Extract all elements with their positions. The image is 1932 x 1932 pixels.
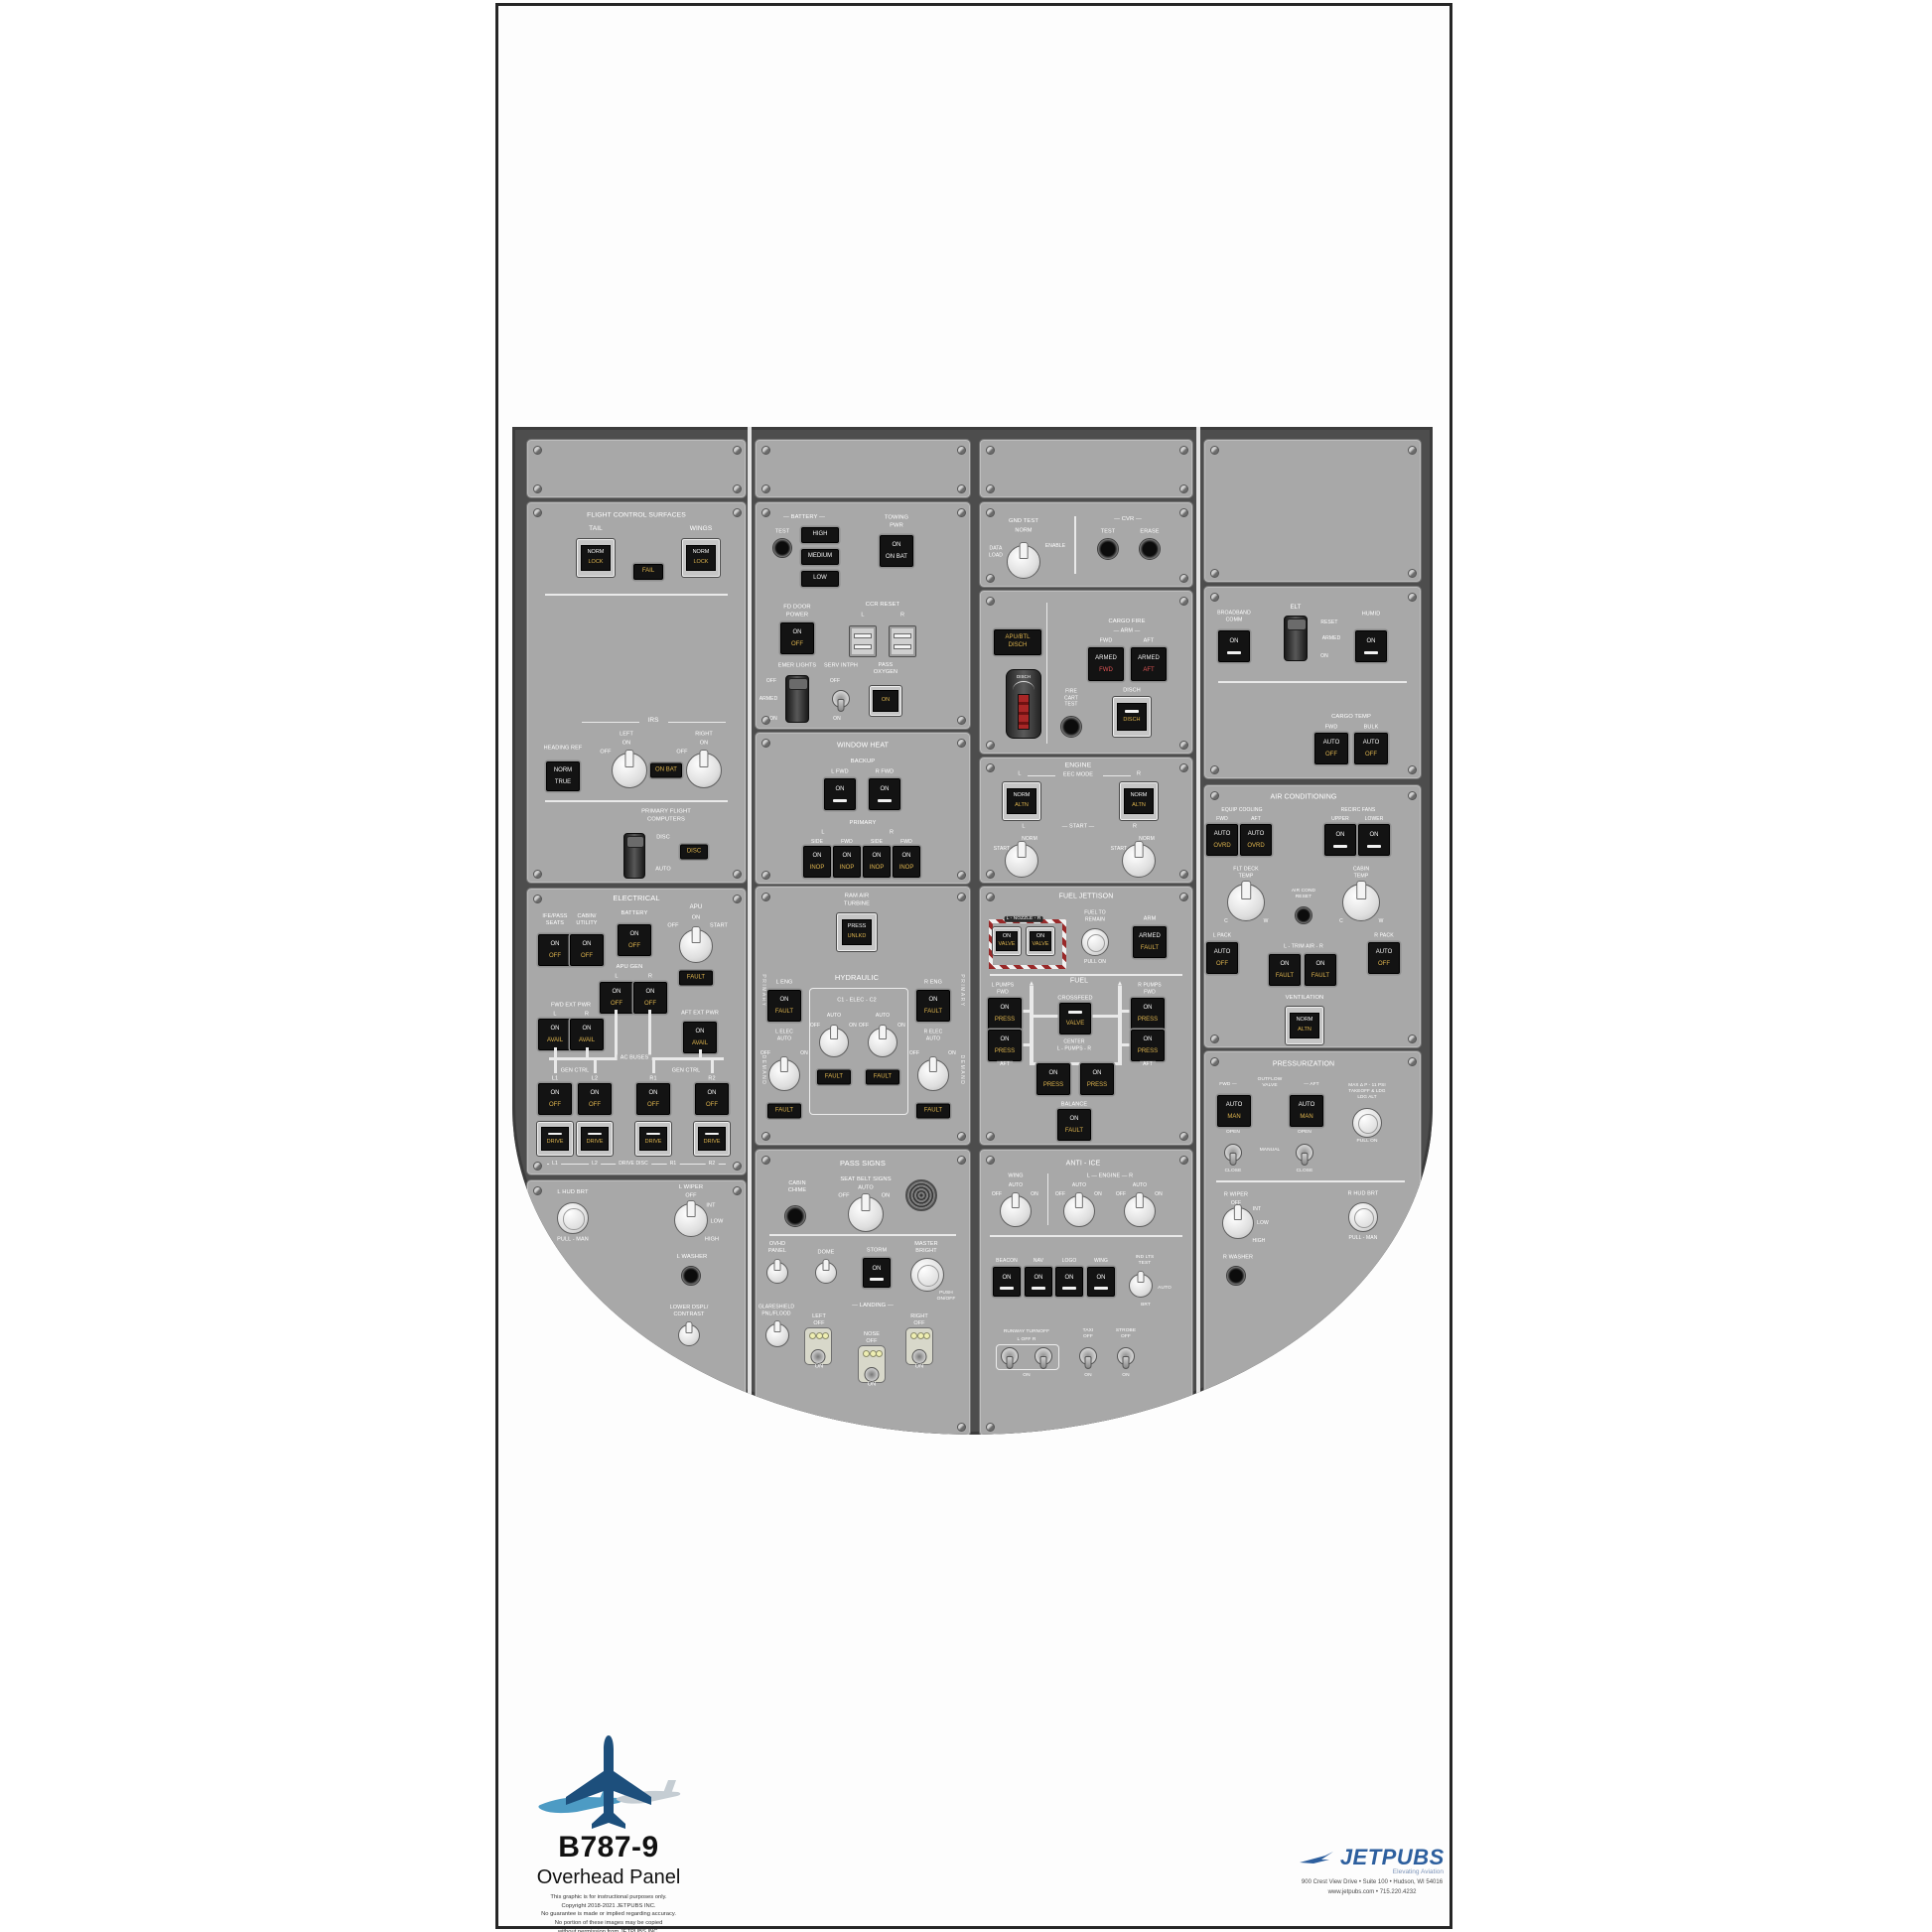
ife-pass-seats[interactable]: ONOFF xyxy=(538,934,572,966)
w: W xyxy=(1264,918,1269,925)
flt-deck-temp-knob-pointer xyxy=(1241,881,1251,899)
off: OFF xyxy=(1055,1191,1065,1198)
battery-test-button[interactable] xyxy=(772,538,792,558)
plate-mid-right-gnd-test: GND TESTNORMDATA LOADENABLE— CVR —TESTER… xyxy=(979,501,1193,588)
ccr-reset-l-slot-1 xyxy=(854,633,872,638)
dome-knob-pointer xyxy=(823,1259,830,1271)
landing-right-toggle[interactable] xyxy=(905,1327,933,1365)
beacon-light-switch[interactable]: ON xyxy=(993,1267,1021,1297)
on: ON xyxy=(868,1381,876,1388)
window-heat-backup-r-fwd[interactable]: ON xyxy=(869,778,900,810)
equip-cooling-aft[interactable]: AUTOOVRD xyxy=(1240,824,1272,856)
off: OFF xyxy=(760,1050,770,1057)
lower-dspl-contrast-knob[interactable] xyxy=(678,1324,700,1346)
plate-left-fcs: FLIGHT CONTROL SURFACESTAILWINGSNORMLOCK… xyxy=(526,501,747,884)
on: ON xyxy=(1084,1373,1091,1379)
apu-gen: APU GEN xyxy=(617,964,643,972)
low: LOW xyxy=(711,1218,724,1225)
jettison-nozzle-l[interactable]: ONVALVE xyxy=(992,926,1022,956)
screw-icon-0 xyxy=(986,597,995,606)
l-fwd: L FWD xyxy=(831,768,848,775)
screw-icon-3 xyxy=(1408,765,1417,774)
indicator-bar xyxy=(646,1133,660,1136)
l-fuel-pump-aft[interactable]: ONPRESS xyxy=(988,1030,1022,1061)
jettison-nozzle-r[interactable]: ONVALVE xyxy=(1026,926,1055,956)
arm: — ARM — xyxy=(1114,627,1141,634)
fuel-to-remain-knob[interactable] xyxy=(1081,928,1109,956)
gen-ctrl-l1[interactable]: ONOFF xyxy=(538,1083,572,1115)
ln xyxy=(1033,1015,1061,1018)
open: OPEN xyxy=(1298,1130,1311,1136)
runway-turnoff-l[interactable] xyxy=(1001,1347,1019,1365)
medium-indicator: MEDIUM xyxy=(801,549,839,565)
arm: ARM xyxy=(1144,915,1157,922)
ind-lts-test: IND LTS TEST xyxy=(1136,1255,1155,1267)
plate-mid-left-window-heat: WINDOW HEATBACKUPL FWDR FWDONONPRIMARYLR… xyxy=(755,732,971,885)
fault-indicator: FAULT xyxy=(767,1104,801,1119)
pull-on: PULL ON xyxy=(1356,1139,1377,1145)
screw-icon-0 xyxy=(986,446,995,455)
landing-left-toggle[interactable] xyxy=(804,1327,832,1365)
start: START xyxy=(710,922,728,929)
ln xyxy=(711,1059,714,1073)
fwd-ext-pwr: FWD EXT PWR xyxy=(551,1002,591,1009)
screw-icon-1 xyxy=(1408,1057,1417,1066)
screw-icon-0 xyxy=(761,446,770,455)
indicator-bar xyxy=(1125,710,1139,713)
equip-cooling-fwd[interactable]: AUTOOVRD xyxy=(1206,824,1238,856)
fd-door-power[interactable]: ONOFF xyxy=(780,622,814,654)
push-on-off: PUSH ON/OFF xyxy=(937,1291,956,1303)
screw-icon-2 xyxy=(986,1423,995,1432)
serv-intph-toggle-lever xyxy=(838,699,845,712)
strobe-off: STROBE OFF xyxy=(1116,1328,1136,1340)
logo-light-switch[interactable]: ON xyxy=(1055,1267,1083,1297)
engine-anti-ice-r[interactable] xyxy=(1124,1195,1156,1227)
apu-selector[interactable] xyxy=(679,929,713,963)
r-washer-button[interactable] xyxy=(1226,1266,1246,1286)
r-washer: R WASHER xyxy=(1223,1254,1253,1261)
window-heat-r-fwd[interactable]: ONINOP xyxy=(893,846,920,878)
irs-right-knob[interactable] xyxy=(686,753,722,788)
screw-icon-0 xyxy=(1210,593,1219,602)
drive-disc-r2[interactable]: DRIVE xyxy=(693,1121,731,1157)
elt-guard-switch-cap xyxy=(1287,619,1307,630)
engine-anti-ice-l[interactable] xyxy=(1063,1195,1095,1227)
landing-left-toggle-lamp-0 xyxy=(809,1332,816,1339)
lower: LOWER xyxy=(1365,816,1384,823)
right-off: RIGHT OFF xyxy=(910,1313,928,1327)
side: SIDE xyxy=(811,839,823,846)
emer-lights: EMER LIGHTS xyxy=(778,662,816,669)
broadband-comm-switch[interactable]: ON xyxy=(1218,630,1250,662)
screw-icon-3 xyxy=(1179,741,1188,750)
fire-cart-test-button[interactable] xyxy=(1060,716,1082,738)
fwd: FWD — xyxy=(1219,1082,1237,1088)
screw-icon-0 xyxy=(761,508,770,517)
window-heat-l-fwd[interactable]: ONINOP xyxy=(833,846,861,878)
aft: — AFT xyxy=(1304,1082,1318,1088)
l-wiper-selector[interactable] xyxy=(674,1203,708,1237)
ovhd-panel: OVHD PANEL xyxy=(768,1241,786,1255)
gen-ctrl-r2[interactable]: ONOFF xyxy=(695,1083,729,1115)
drive-disc-l2[interactable]: DRIVE xyxy=(576,1121,614,1157)
glareshield-pnl-flood-knob[interactable] xyxy=(765,1323,789,1347)
window-heat: WINDOW HEAT xyxy=(837,741,889,750)
gen-ctrl: GEN CTRL xyxy=(561,1067,590,1074)
strobe-light-toggle-lever xyxy=(1123,1356,1130,1369)
plate-mid-left-blank xyxy=(755,439,971,498)
c: C xyxy=(1224,918,1228,925)
fault-indicator: FAULT xyxy=(679,971,713,986)
r-wiper-selector[interactable] xyxy=(1222,1207,1254,1239)
pass-oxygen-switch-window: ON xyxy=(873,690,897,711)
l-fuel-pump-fwd[interactable]: ONPRESS xyxy=(988,998,1022,1030)
l-wiper-selector-pointer xyxy=(687,1200,696,1217)
window-heat-l-side[interactable]: ONINOP xyxy=(803,846,831,878)
eec-mode-l[interactable]: NORMALTN xyxy=(1002,781,1041,821)
on: ON xyxy=(948,1050,956,1057)
disch: DISCH xyxy=(1123,687,1141,694)
dome: DOME xyxy=(818,1249,835,1256)
poster-page: FLIGHT CONTROL SURFACESTAILWINGSNORMLOCK… xyxy=(0,0,1932,1932)
on: ON xyxy=(915,1363,923,1370)
hyd-c1-selector[interactable] xyxy=(819,1028,849,1057)
l-elec-auto: L ELEC AUTO xyxy=(775,1030,793,1042)
flight-control-surfaces: FLIGHT CONTROL SURFACES xyxy=(587,512,686,521)
l-hud-brt-knob[interactable] xyxy=(557,1202,589,1234)
center-fuel-pump-r[interactable]: ONPRESS xyxy=(1080,1063,1114,1095)
fwd-ext-pwr-l[interactable]: ONAVAIL xyxy=(538,1019,572,1050)
pfc-disconnect-guard-cap xyxy=(626,836,645,848)
manual-outflow-fwd-lever xyxy=(1230,1153,1237,1166)
nav-light-switch[interactable]: ON xyxy=(1025,1267,1052,1297)
landing-right-toggle-switch xyxy=(912,1349,927,1364)
window-heat-r-side[interactable]: ONINOP xyxy=(863,846,891,878)
emer-lights-guard[interactable] xyxy=(785,675,809,723)
gen-ctrl-l2[interactable]: ONOFF xyxy=(578,1083,612,1115)
engine: ENGINE xyxy=(1065,762,1092,771)
ind-lts-selector[interactable] xyxy=(1129,1274,1153,1298)
recirc-fan-lower[interactable]: ON xyxy=(1358,824,1390,856)
ln xyxy=(1047,1173,1048,1225)
screw-icon-0 xyxy=(533,895,542,903)
auto: AUTO xyxy=(827,1013,841,1020)
ccr-reset-l-slot-2 xyxy=(854,644,872,649)
center-fuel-pump-l[interactable]: ONPRESS xyxy=(1036,1063,1070,1095)
fuel-balance[interactable]: ONFAULT xyxy=(1057,1109,1091,1141)
eec-mode-r[interactable]: NORMALTN xyxy=(1119,781,1159,821)
fwd-ext-pwr-r[interactable]: ONAVAIL xyxy=(570,1019,604,1050)
beacon: BEACON xyxy=(996,1258,1018,1265)
outflow-valve-fwd[interactable]: AUTOMAN xyxy=(1217,1095,1251,1127)
wings-norm-lock-window: NORMLOCK xyxy=(686,545,715,571)
r-fuel-pump-aft[interactable]: ONPRESS xyxy=(1131,1030,1165,1061)
irs-left-knob[interactable] xyxy=(612,753,647,788)
landing-nose-toggle-lamp-0 xyxy=(863,1350,870,1357)
screw-icon-0 xyxy=(761,893,770,901)
towing-pwr-switch[interactable]: ONON BAT xyxy=(880,535,913,567)
aft-ext-pwr: AFT EXT PWR xyxy=(681,1010,719,1017)
screw-icon-0 xyxy=(761,1156,770,1165)
plate-mid-right-engine: ENGINEEEC MODELRNORMALTNNORMALTN— START … xyxy=(979,757,1193,884)
window-heat-backup-l-fwd[interactable]: ON xyxy=(824,778,856,810)
hyd-r-elec-selector-pointer xyxy=(929,1056,937,1072)
disc-indicator: DISC xyxy=(680,845,708,860)
drive-disc-r1[interactable]: DRIVE xyxy=(634,1121,672,1157)
r-pumps-fwd: R PUMPS FWD xyxy=(1138,983,1161,996)
ln xyxy=(769,1234,956,1236)
ln xyxy=(1074,516,1076,574)
indicator-bar xyxy=(1333,845,1347,848)
aft: AFT xyxy=(1140,1061,1156,1068)
ln xyxy=(990,974,1182,976)
ac-buses: AC BUSES xyxy=(618,1054,652,1061)
screw-icon-2 xyxy=(1210,569,1219,578)
primary: PRIMARY xyxy=(760,974,766,1007)
outflow-valve-aft[interactable]: AUTOMAN xyxy=(1290,1095,1323,1127)
plate-right-air-conditioning: AIR CONDITIONINGEQUIP COOLINGFWDAFTAUTOO… xyxy=(1203,784,1422,1048)
air-cond-reset-button[interactable] xyxy=(1295,906,1312,924)
screw-icon-1 xyxy=(957,739,966,748)
plate-left-electrical: ELECTRICALIFE/PASS SEATSCABIN/ UTILITYON… xyxy=(526,888,747,1175)
fault-indicator: FAULT xyxy=(916,1104,950,1119)
fire-cart-test: FIRE CART TEST xyxy=(1064,688,1078,708)
hyd-r-elec-selector[interactable] xyxy=(917,1059,949,1091)
drive-disc-l1[interactable]: DRIVE xyxy=(536,1121,574,1157)
ram-air-turbine-switch[interactable]: PRESSUNLKD xyxy=(836,912,878,952)
primary: PRIMARY xyxy=(849,820,876,828)
pfc-disconnect-guard[interactable] xyxy=(623,833,645,879)
trim-air-r[interactable]: ONFAULT xyxy=(1305,954,1336,986)
jetpubs-swoosh-icon xyxy=(1300,1852,1333,1865)
cargo-fire-arm-fwd[interactable]: ARMEDFWD xyxy=(1088,647,1124,681)
humid-switch[interactable]: ON xyxy=(1355,630,1387,662)
cabin-chime-button[interactable] xyxy=(784,1205,806,1227)
l: L xyxy=(1022,823,1025,830)
r-wiper-selector-pointer xyxy=(1234,1204,1242,1220)
ln xyxy=(699,1049,702,1057)
r: R xyxy=(1137,770,1141,777)
flt-deck-temp-knob[interactable] xyxy=(1227,884,1265,921)
l: L xyxy=(553,1011,556,1018)
tail-norm-lock-window: NORMLOCK xyxy=(581,545,610,571)
pass-oxygen-switch[interactable]: ON xyxy=(869,685,902,717)
l-washer-button[interactable] xyxy=(681,1266,701,1286)
screw-icon-2 xyxy=(533,1162,542,1171)
screw-icon-3 xyxy=(1179,484,1188,493)
drive-disc: DRIVE DISC xyxy=(616,1161,651,1168)
on: ON xyxy=(815,1363,823,1370)
eec-mode-r-window: NORMALTN xyxy=(1124,788,1153,814)
screw-icon-1 xyxy=(957,508,966,517)
armed: ARMED xyxy=(759,696,778,703)
r: R xyxy=(585,1011,589,1018)
engine-anti-ice-r-pointer xyxy=(1136,1192,1144,1208)
cargo-fire-arm-aft[interactable]: ARMEDAFT xyxy=(1131,647,1167,681)
hyd-l-eng[interactable]: ONFAULT xyxy=(767,990,801,1022)
battery: — BATTERY — xyxy=(783,514,825,522)
screw-icon-0 xyxy=(1210,791,1219,800)
runway-turnoff-r[interactable] xyxy=(1035,1347,1052,1365)
right: RIGHT xyxy=(695,731,713,738)
cvr-test-button[interactable] xyxy=(1097,538,1119,560)
screw-icon-1 xyxy=(1179,763,1188,772)
off: OFF xyxy=(676,749,687,756)
off: OFF xyxy=(667,922,678,929)
gnd-test-selector[interactable] xyxy=(1007,545,1040,579)
ovhd-panel-knob[interactable] xyxy=(766,1262,788,1284)
off: OFF xyxy=(1116,1191,1126,1198)
ln xyxy=(554,1047,557,1057)
engine-start-r[interactable] xyxy=(1122,844,1156,878)
ccr-reset-l[interactable] xyxy=(849,625,877,657)
high: HIGH xyxy=(705,1236,719,1243)
center-l-pumps-r: CENTER L - PUMPS - R xyxy=(1054,1039,1094,1052)
gen-ctrl-r1[interactable]: ONOFF xyxy=(636,1083,670,1115)
screw-icon-0 xyxy=(533,446,542,455)
hyd-l-elec-selector-pointer xyxy=(780,1056,788,1072)
close: CLOSE xyxy=(1225,1169,1242,1174)
ccr-reset-r[interactable] xyxy=(889,625,916,657)
strobe-light-toggle[interactable] xyxy=(1117,1347,1135,1365)
screw-icon-3 xyxy=(1408,569,1417,578)
pull-man: PULL - MAN xyxy=(1349,1235,1378,1242)
apu-fire-handle[interactable]: DISCH xyxy=(1006,669,1041,739)
ln xyxy=(990,1235,1182,1237)
cargo-fire-disch[interactable]: DISCH xyxy=(1112,696,1152,738)
apu-selector-pointer xyxy=(692,926,701,943)
on: ON xyxy=(849,1023,857,1030)
engine-start-l[interactable] xyxy=(1005,844,1038,878)
cabin-utility[interactable]: ONOFF xyxy=(570,934,604,966)
apu-fire-handle-arc xyxy=(1013,681,1035,690)
off: OFF xyxy=(859,1023,869,1030)
fuel-jettison: FUEL JETTISON xyxy=(1059,892,1114,900)
screw-icon-1 xyxy=(733,1186,742,1195)
trim-air-l[interactable]: ONFAULT xyxy=(1269,954,1301,986)
hyd-c2-selector[interactable] xyxy=(868,1028,897,1057)
auto: AUTO xyxy=(876,1013,890,1020)
cargo-temp-bulk[interactable]: AUTOOFF xyxy=(1354,733,1388,764)
cvr-erase-button[interactable] xyxy=(1139,538,1161,560)
jetpubs-address: 900 Crest View Drive • Suite 100 • Hudso… xyxy=(1273,1878,1471,1897)
seat-belt-signs-selector[interactable] xyxy=(848,1196,884,1232)
master-bright-knob[interactable] xyxy=(910,1258,944,1292)
recirc-fan-upper[interactable]: ON xyxy=(1324,824,1356,856)
wing-anti-ice-selector[interactable] xyxy=(1000,1195,1032,1227)
screw-icon-0 xyxy=(986,1156,995,1165)
elt-guard-switch[interactable] xyxy=(1284,616,1308,661)
battery-switch[interactable]: ONOFF xyxy=(618,924,651,956)
jettison-arm[interactable]: ARMEDFAULT xyxy=(1133,926,1167,958)
ln xyxy=(545,800,728,802)
on: ON xyxy=(700,740,708,747)
ln xyxy=(1118,986,1122,1065)
wings: WINGS xyxy=(690,525,713,533)
r-fuel-pump-fwd[interactable]: ONPRESS xyxy=(1131,998,1165,1030)
hyd-l-elec-selector[interactable] xyxy=(768,1059,800,1091)
ln xyxy=(1218,681,1407,683)
off: OFF xyxy=(600,749,611,756)
hyd-r-eng[interactable]: ONFAULT xyxy=(916,990,950,1022)
screw-icon-3 xyxy=(733,870,742,879)
ldg-alt-knob[interactable] xyxy=(1352,1108,1382,1138)
cargo-temp: CARGO TEMP xyxy=(1331,714,1371,722)
l1: L1 xyxy=(552,1075,558,1082)
wings-norm-lock[interactable]: NORMLOCK xyxy=(681,538,721,578)
cargo-temp-fwd[interactable]: AUTOOFF xyxy=(1314,733,1348,764)
drive-disc-l1-window: DRIVE xyxy=(541,1127,569,1151)
fuel-to-remain: FUEL TO REMAIN xyxy=(1084,910,1105,923)
landing-nose-toggle[interactable] xyxy=(858,1345,886,1383)
r-pack[interactable]: AUTOOFF xyxy=(1368,942,1400,974)
dome-knob[interactable] xyxy=(815,1262,837,1284)
gnd-test-selector-pointer xyxy=(1020,542,1029,559)
cabin-temp-knob[interactable] xyxy=(1342,884,1380,921)
auto: AUTO xyxy=(858,1184,874,1191)
screw-icon-3 xyxy=(957,1132,966,1141)
ccr-reset-r-slot-1 xyxy=(894,633,911,638)
r-hud-brt-knob[interactable] xyxy=(1348,1202,1378,1232)
speaker-grille xyxy=(905,1179,937,1211)
crossfeed: CROSSFEED xyxy=(1054,995,1095,1002)
runway-turnoff-l-lever xyxy=(1007,1356,1014,1369)
int: INT xyxy=(1253,1206,1261,1213)
pass-oxygen: PASS OXYGEN xyxy=(874,662,897,676)
taxi-light-toggle[interactable] xyxy=(1079,1347,1097,1365)
screw-icon-3 xyxy=(957,716,966,725)
screw-icon-3 xyxy=(957,871,966,880)
screw-icon-2 xyxy=(761,871,770,880)
manual-outflow-aft[interactable] xyxy=(1296,1144,1313,1162)
heading-ref-switch[interactable]: NORMTRUE xyxy=(546,761,580,791)
auto: AUTO xyxy=(1072,1182,1086,1189)
l2: L2 xyxy=(592,1075,598,1082)
pull-on: PULL ON xyxy=(1084,959,1106,966)
screw-icon-0 xyxy=(533,1186,542,1195)
indicator-bar xyxy=(1032,1287,1045,1290)
landing-nose-toggle-switch xyxy=(865,1367,880,1382)
manual-outflow-fwd[interactable] xyxy=(1224,1144,1242,1162)
crossfeed-valve[interactable]: VALVE xyxy=(1059,1003,1091,1035)
plate-mid-left-battery-towing: — BATTERY —TESTHIGHMEDIUMLOWTOWING PWRON… xyxy=(755,501,971,730)
r2: R2 xyxy=(708,1075,715,1082)
on: ON xyxy=(1023,1373,1030,1379)
lower-dspl-contrast-knob-pointer xyxy=(686,1321,693,1333)
wing-light-switch[interactable]: ON xyxy=(1087,1267,1115,1297)
l-pack[interactable]: AUTOOFF xyxy=(1206,942,1238,974)
humid: HUMID xyxy=(1362,611,1381,618)
tail-norm-lock[interactable]: NORMLOCK xyxy=(576,538,616,578)
serv-intph-toggle[interactable] xyxy=(832,690,850,708)
r-fwd: R FWD xyxy=(876,768,895,775)
indicator-bar xyxy=(1094,1287,1108,1290)
logo: LOGO xyxy=(1062,1258,1077,1265)
ventilation-switch-window: NORMALTN xyxy=(1290,1013,1318,1038)
fwd: FWD xyxy=(1325,724,1338,731)
nose-off: NOSE OFF xyxy=(864,1331,880,1345)
ln xyxy=(554,1059,557,1073)
screw-icon-3 xyxy=(957,1423,966,1432)
ventilation-switch[interactable]: NORMALTN xyxy=(1285,1006,1324,1045)
jetpubs-logo: JETPUBS xyxy=(1273,1845,1471,1870)
w: W xyxy=(1379,918,1384,925)
fd-door-power: FD DOOR POWER xyxy=(783,604,810,619)
storm-switch[interactable]: ON xyxy=(863,1258,891,1288)
side: SIDE xyxy=(871,839,883,846)
screw-icon-1 xyxy=(1179,446,1188,455)
